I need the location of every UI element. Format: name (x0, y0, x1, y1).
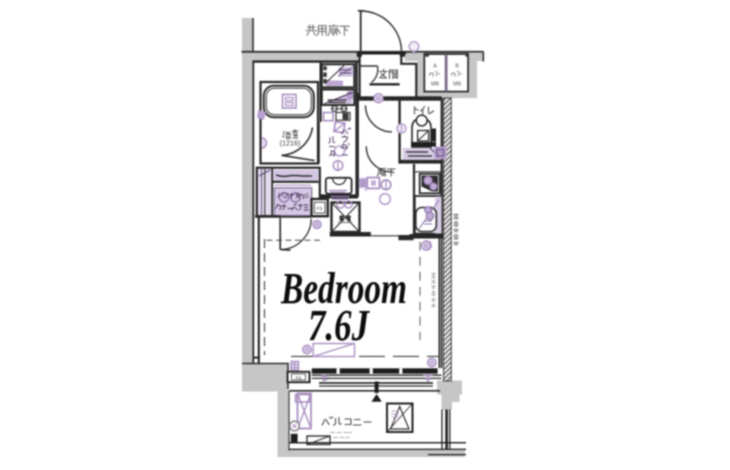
svg-text:FS: FS (317, 206, 323, 211)
svg-text:(1216): (1216) (280, 139, 301, 148)
svg-text:B: B (455, 64, 459, 70)
svg-text:MB: MB (453, 82, 461, 88)
svg-text:FS: FS (296, 376, 302, 381)
svg-text:MB: MB (431, 82, 439, 88)
svg-text:A: A (433, 64, 437, 70)
svg-text:7.6J: 7.6J (308, 301, 371, 350)
